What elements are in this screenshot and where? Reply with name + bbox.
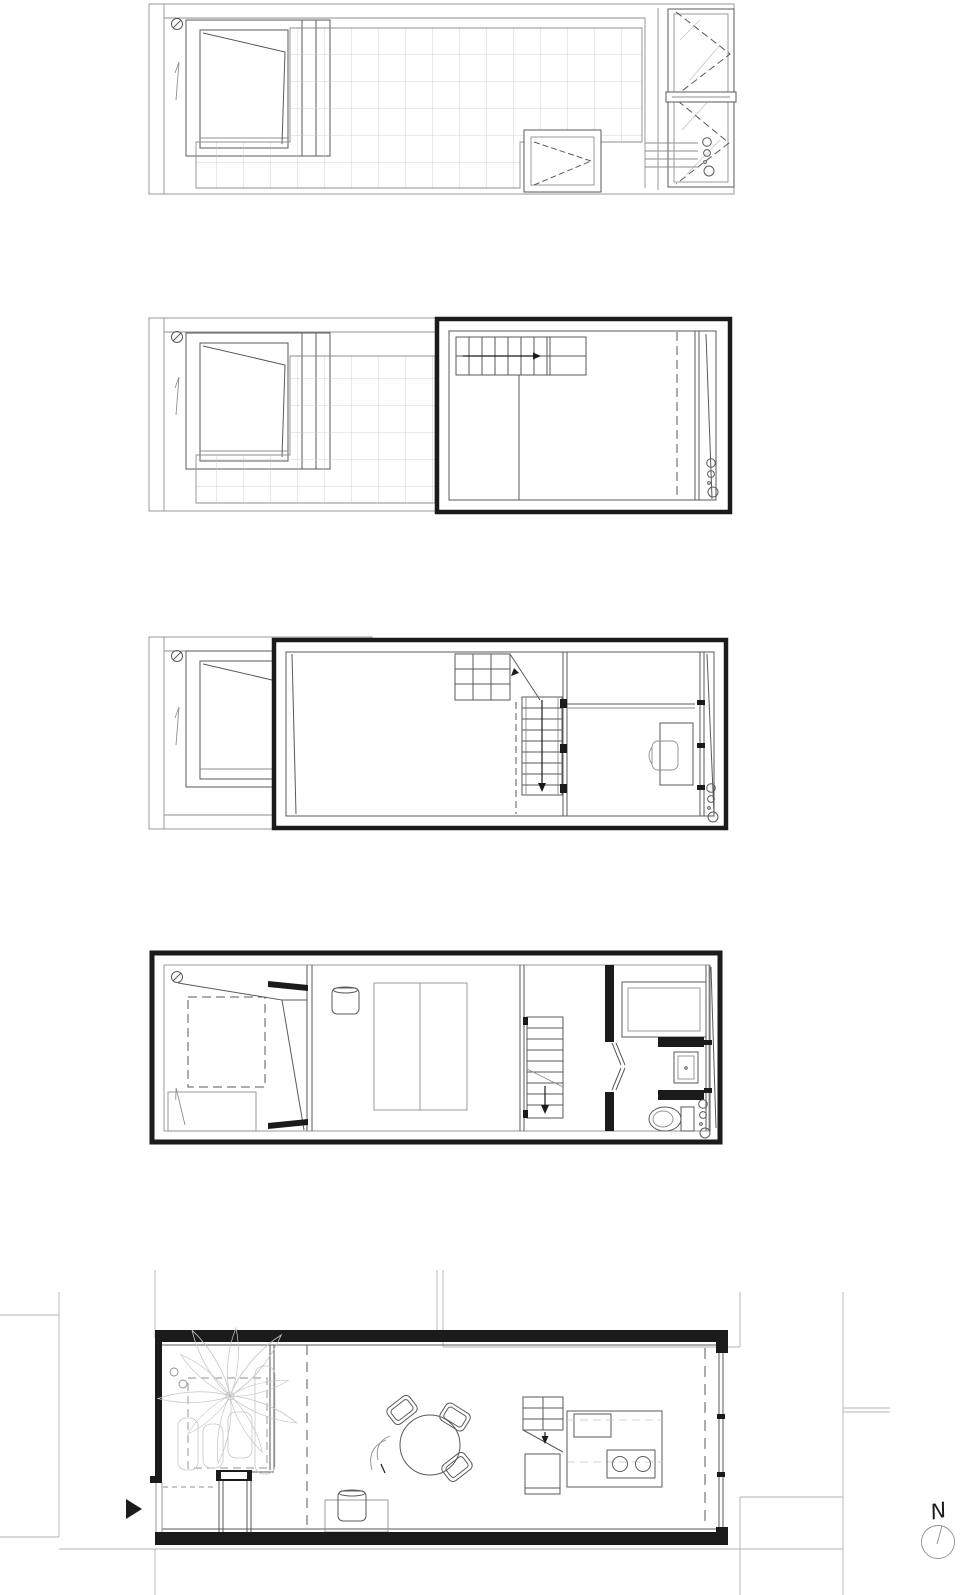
roof-plan (149, 4, 736, 194)
north-label: N (928, 1498, 949, 1525)
top-floor-plan (149, 318, 730, 512)
terrace-tile-grid (196, 356, 435, 503)
kitchen-sink (574, 1414, 611, 1437)
shelf-bottom (658, 1090, 704, 1100)
ground-floor-plan: N (0, 1270, 955, 1595)
site-context-lines (0, 1270, 890, 1595)
cooktop (607, 1450, 655, 1478)
ground-floor-building (150, 1327, 728, 1545)
roof-direction-arrow (175, 62, 179, 100)
middle-floor-room (274, 640, 726, 828)
floor-plan-sheet: N (0, 0, 960, 1595)
ground-floor-glazing (705, 1342, 728, 1538)
roof-drain-symbol (172, 19, 183, 30)
shelf-top (658, 1037, 704, 1047)
roof-drain-pipes (703, 138, 714, 176)
middle-floor-plan (149, 637, 726, 829)
bedroom-floor-plan (152, 953, 720, 1142)
window-desk-stool (325, 1490, 388, 1532)
kitchen (523, 1397, 662, 1494)
entry-door (216, 1470, 252, 1532)
roof-hatch-skylight (524, 130, 601, 192)
roof-grill-lines (645, 143, 698, 167)
floor-plans-canvas: N (0, 0, 960, 1595)
dining-set (371, 1394, 475, 1484)
glazed-roof-strip (666, 9, 736, 187)
structural-walls (150, 1330, 728, 1545)
kitchen-island (567, 1411, 662, 1487)
entrance-arrow-icon (126, 1499, 142, 1519)
north-compass: N (922, 1498, 955, 1559)
top-floor-room (437, 319, 730, 512)
